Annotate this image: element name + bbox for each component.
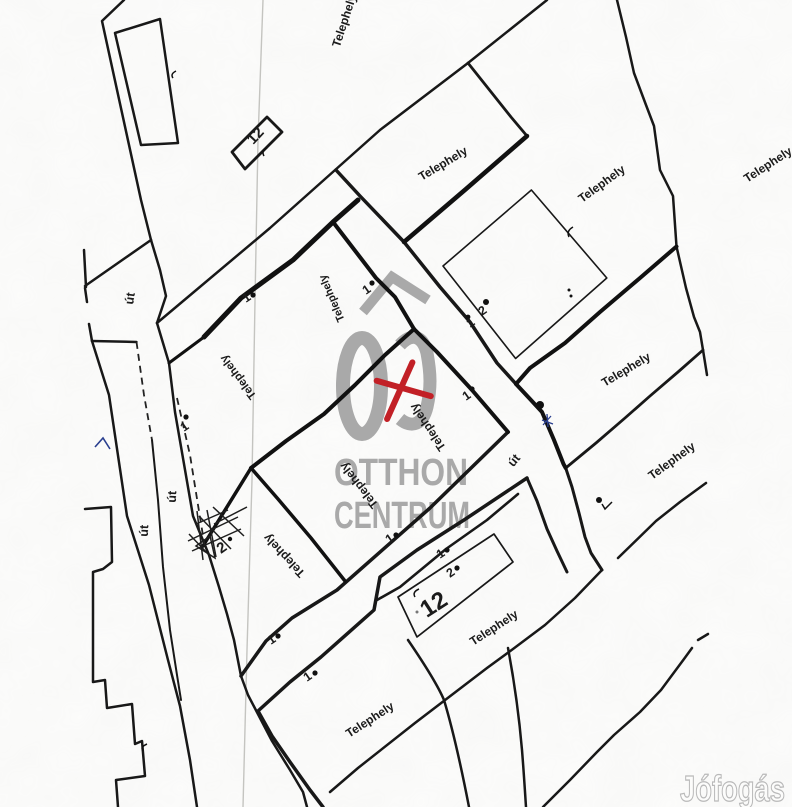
svg-text:út: út bbox=[137, 524, 152, 537]
svg-text:út: út bbox=[165, 490, 180, 503]
svg-text:Jófogás: Jófogás bbox=[680, 768, 785, 807]
